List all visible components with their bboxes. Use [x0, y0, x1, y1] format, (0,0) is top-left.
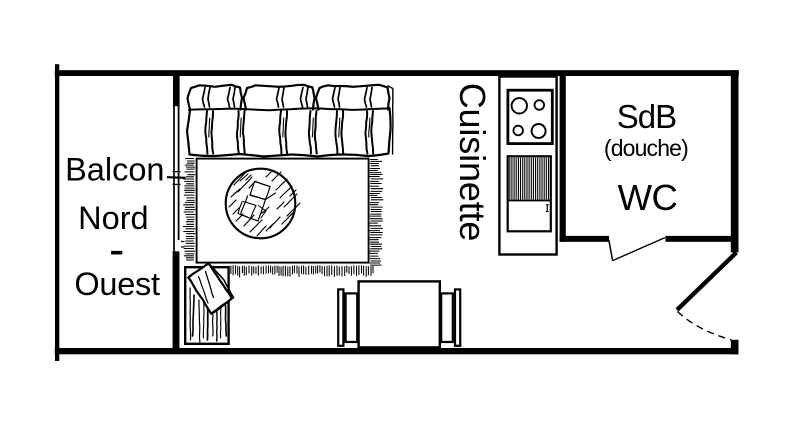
svg-text:Cuisinette: Cuisinette — [452, 83, 493, 242]
svg-text:WC: WC — [618, 177, 678, 218]
svg-text:SdB: SdB — [617, 98, 676, 135]
svg-text:Balcon: Balcon — [65, 151, 164, 187]
svg-text:Ouest: Ouest — [74, 266, 160, 302]
svg-text:(douche): (douche) — [604, 135, 688, 161]
